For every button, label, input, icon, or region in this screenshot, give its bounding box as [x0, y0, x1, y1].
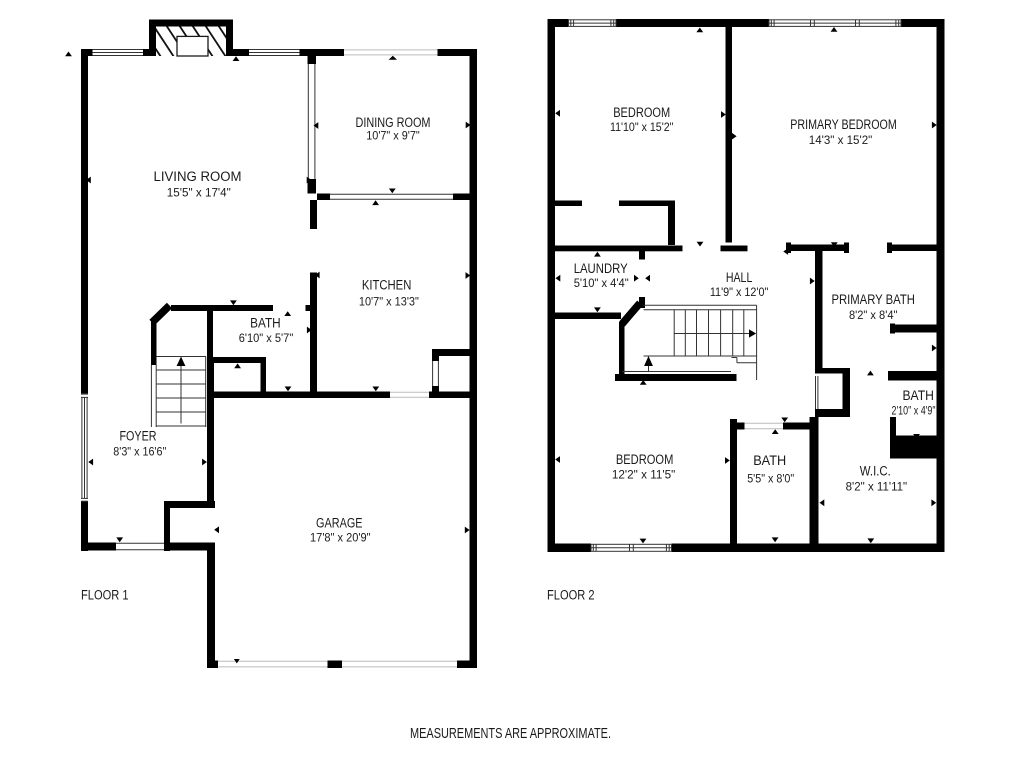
svg-text:17'8" x 20'9": 17'8" x 20'9": [310, 533, 371, 545]
svg-text:DINING ROOM: DINING ROOM: [356, 115, 431, 130]
svg-text:BATH: BATH: [902, 388, 934, 403]
svg-text:MEASUREMENTS ARE APPROXIMATE.: MEASUREMENTS ARE APPROXIMATE.: [410, 725, 611, 742]
svg-text:12'2" x 11'5": 12'2" x 11'5": [612, 470, 676, 482]
svg-text:8'2" x 11'11": 8'2" x 11'11": [846, 482, 908, 494]
svg-text:BEDROOM: BEDROOM: [613, 105, 670, 120]
svg-text:BATH: BATH: [250, 316, 281, 331]
svg-text:PRIMARY BEDROOM: PRIMARY BEDROOM: [790, 117, 897, 132]
svg-text:8'2" x 8'4": 8'2" x 8'4": [849, 310, 898, 322]
svg-text:11'10" x 15'2": 11'10" x 15'2": [610, 122, 674, 134]
svg-text:15'5" x 17'4": 15'5" x 17'4": [167, 188, 231, 200]
svg-text:14'3" x 15'2": 14'3" x 15'2": [809, 135, 873, 147]
svg-text:10'7" x 13'3": 10'7" x 13'3": [359, 297, 419, 309]
svg-text:BEDROOM: BEDROOM: [616, 452, 674, 467]
svg-text:KITCHEN: KITCHEN: [362, 278, 412, 293]
svg-text:FOYER: FOYER: [120, 429, 157, 444]
svg-text:LIVING ROOM: LIVING ROOM: [154, 169, 242, 184]
svg-text:6'10" x 5'7": 6'10" x 5'7": [239, 333, 294, 345]
svg-text:BATH: BATH: [753, 453, 786, 468]
svg-text:FLOOR 2: FLOOR 2: [547, 588, 595, 603]
svg-text:10'7" x 9'7": 10'7" x 9'7": [366, 131, 420, 143]
svg-text:8'3" x 16'6": 8'3" x 16'6": [113, 447, 166, 459]
svg-text:PRIMARY BATH: PRIMARY BATH: [831, 292, 915, 307]
svg-text:11'9" x 12'0": 11'9" x 12'0": [710, 287, 769, 299]
svg-text:FLOOR 1: FLOOR 1: [81, 588, 129, 603]
svg-text:5'10" x 4'4": 5'10" x 4'4": [574, 278, 629, 290]
svg-text:W.I.C.: W.I.C.: [860, 464, 891, 479]
svg-text:5'5" x 8'0": 5'5" x 8'0": [747, 474, 794, 486]
svg-text:LAUNDRY: LAUNDRY: [574, 261, 628, 276]
svg-text:2'10" x 4'9": 2'10" x 4'9": [892, 406, 936, 418]
svg-text:HALL: HALL: [726, 270, 753, 285]
svg-text:GARAGE: GARAGE: [316, 516, 363, 531]
